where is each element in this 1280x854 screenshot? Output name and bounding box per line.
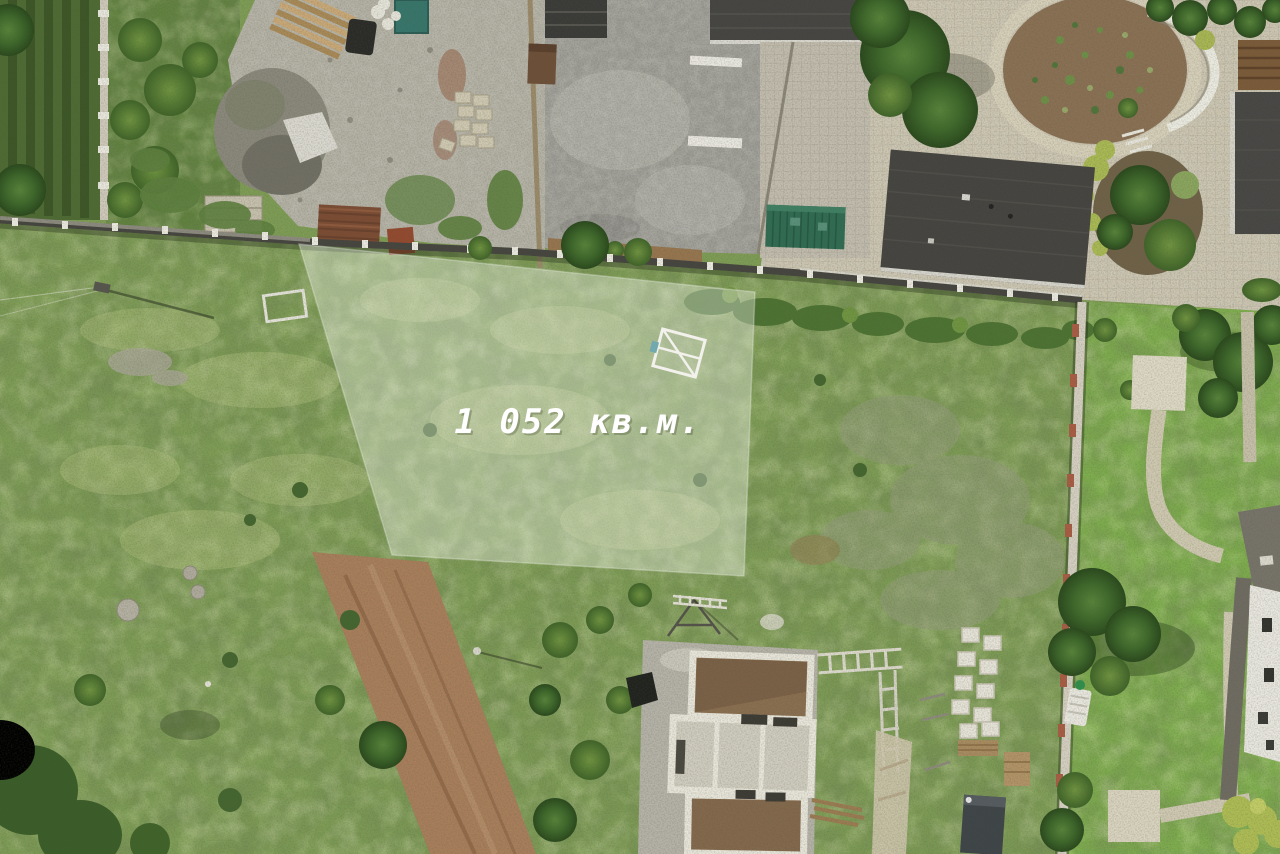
- aerial-photo-land-plot: 1 052 кв.м. 1 052 кв.м.: [0, 0, 1280, 854]
- area-label: 1 052 кв.м.: [454, 402, 701, 442]
- aerial-photo-canvas: 1 052 кв.м. 1 052 кв.м.: [0, 0, 1280, 854]
